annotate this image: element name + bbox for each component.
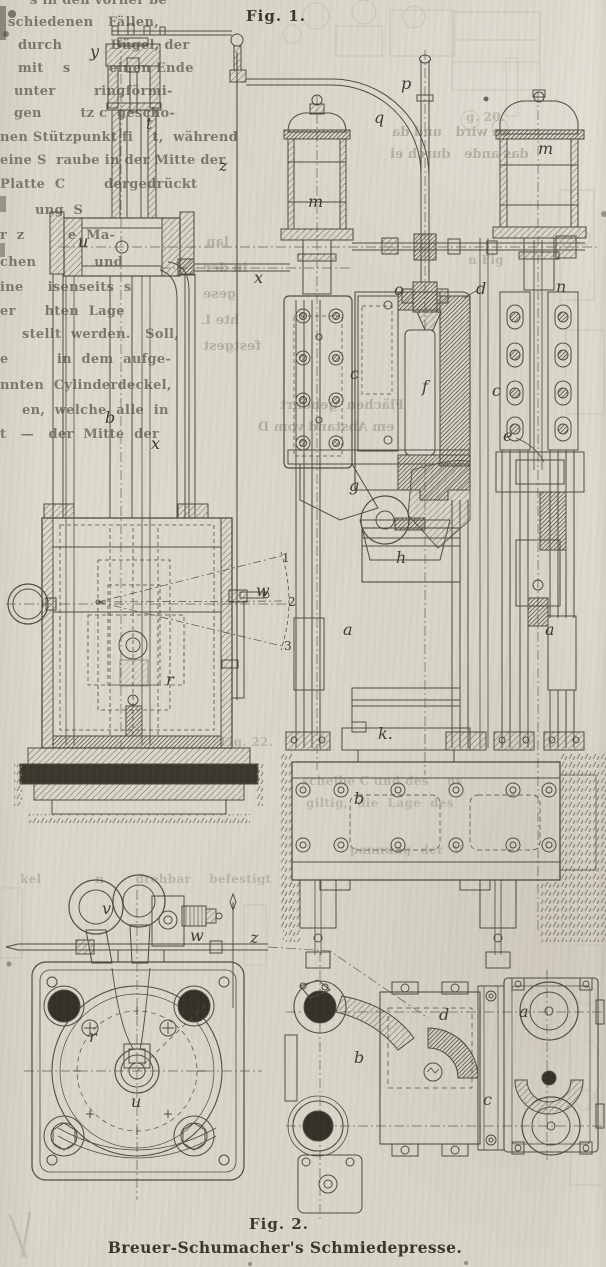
part-label: d xyxy=(476,281,486,297)
part-label: t xyxy=(146,116,152,132)
scanned-journal-page: en wird und dadas ande durch eilanin der… xyxy=(0,0,606,1267)
part-label: o xyxy=(394,282,404,298)
fig2-caption: Fig. 2. xyxy=(249,1217,309,1232)
part-label: x xyxy=(151,436,160,452)
part-label: 1 xyxy=(282,552,290,564)
part-label: q xyxy=(374,110,384,126)
part-label: b xyxy=(354,791,364,807)
part-label: 3 xyxy=(284,640,292,652)
part-label: r xyxy=(166,672,174,688)
part-label: u xyxy=(131,1094,141,1110)
part-label: n xyxy=(556,279,566,295)
part-label: z xyxy=(250,930,258,946)
part-label: p xyxy=(401,76,411,92)
part-label: k. xyxy=(378,726,393,742)
part-label: a xyxy=(545,622,555,638)
part-label: c xyxy=(483,1092,492,1108)
part-labels-layer: ytzuxbxwr123pqmmodncfceghaak.bvwzrudabc xyxy=(0,0,606,1267)
part-label: r xyxy=(89,1029,97,1045)
part-label: m xyxy=(538,141,553,157)
figure-title: Breuer-Schumacher's Schmiedepresse. xyxy=(40,1240,530,1256)
part-label: a xyxy=(519,1004,529,1020)
part-label: h xyxy=(396,550,406,566)
part-label: c xyxy=(350,366,359,382)
part-label: e xyxy=(503,428,512,444)
part-label: b xyxy=(354,1050,364,1066)
fig1-caption: Fig. 1. xyxy=(246,9,306,24)
part-label: b xyxy=(105,410,115,426)
part-label: c xyxy=(492,383,501,399)
part-label: v xyxy=(102,901,111,917)
part-label: w xyxy=(256,583,270,599)
part-label: d xyxy=(439,1007,449,1023)
part-label: f xyxy=(422,379,428,395)
part-label: m xyxy=(308,194,323,210)
part-label: w xyxy=(190,928,204,944)
part-label: x xyxy=(254,270,263,286)
part-label: z xyxy=(219,158,227,174)
part-label: g xyxy=(349,478,359,494)
part-label: y xyxy=(90,44,99,60)
part-label: 2 xyxy=(288,596,296,608)
part-label: u xyxy=(78,234,88,250)
part-label: a xyxy=(343,622,353,638)
